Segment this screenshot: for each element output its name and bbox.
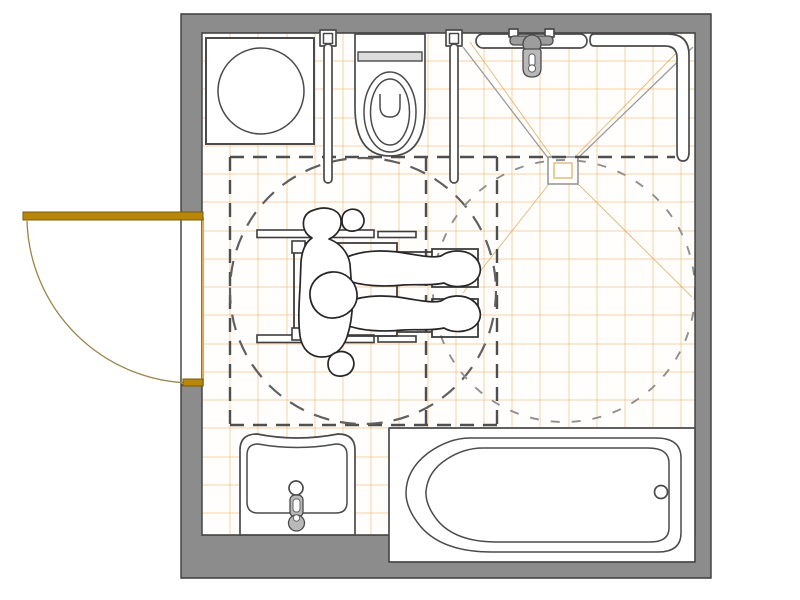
person-leg-top — [342, 251, 480, 287]
basin-tap — [289, 481, 305, 531]
washbasin — [240, 434, 355, 535]
floor-plan-canvas — [0, 0, 800, 600]
person-head — [310, 272, 357, 318]
tub-drain — [655, 486, 668, 499]
person-hand-bottom — [328, 352, 354, 377]
entry-door — [23, 212, 203, 386]
door-swing-arc — [27, 221, 191, 383]
toilet-flush-plate — [358, 52, 422, 61]
rail-bar — [450, 44, 458, 183]
door-sill — [183, 379, 203, 386]
toilet — [355, 34, 425, 156]
person-hand-top — [342, 209, 364, 231]
bathtub — [389, 428, 695, 562]
washing-machine — [206, 38, 314, 144]
handrim-top — [378, 232, 416, 238]
person-leg-bottom — [342, 296, 480, 332]
mixer-lever-inner — [529, 54, 535, 66]
rail-bar — [324, 44, 332, 183]
shower-drain — [548, 157, 578, 184]
door-leaf — [23, 212, 203, 220]
